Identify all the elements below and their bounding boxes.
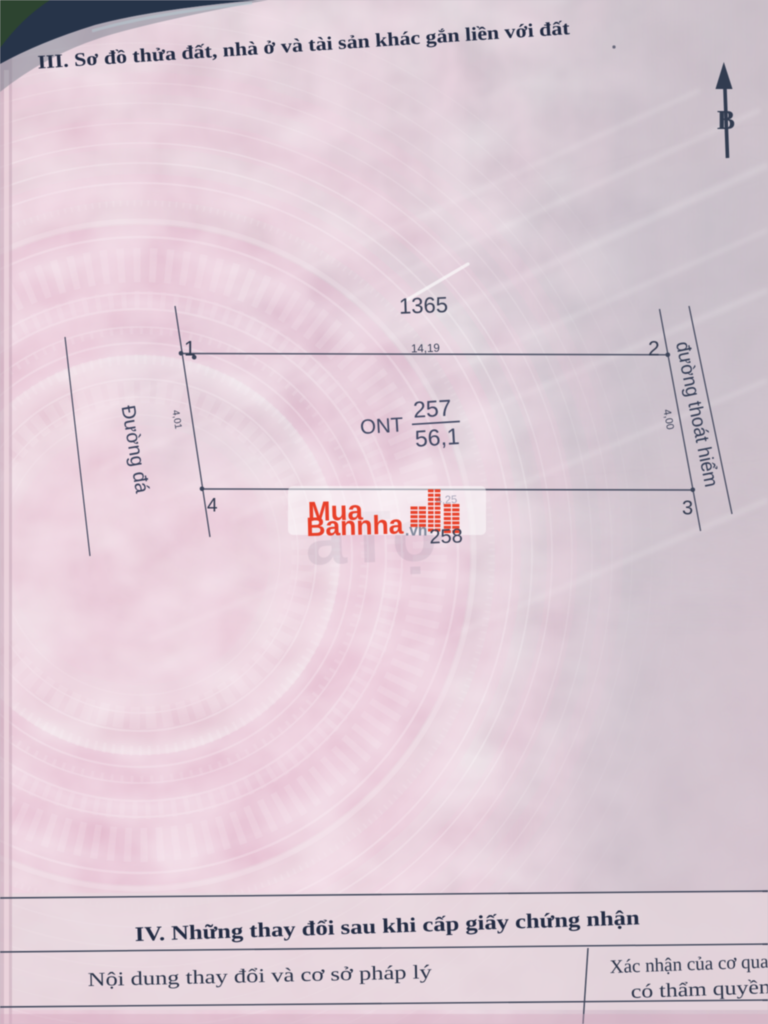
svg-text:258: 258	[429, 525, 463, 548]
svg-text:3: 3	[682, 498, 693, 520]
svg-text:56,1: 56,1	[414, 423, 460, 452]
svg-text:14,19: 14,19	[411, 343, 440, 356]
svg-text:257: 257	[412, 394, 452, 422]
svg-text:2: 2	[648, 338, 660, 361]
svg-text:B: B	[717, 105, 735, 135]
svg-text:Bannha: Bannha	[306, 509, 404, 542]
svg-text:4: 4	[207, 496, 218, 517]
svg-text:1365: 1365	[399, 292, 449, 319]
svg-text:4,25: 4,25	[436, 494, 458, 507]
svg-text:1: 1	[184, 338, 196, 361]
svg-text:ONT: ONT	[359, 413, 404, 439]
